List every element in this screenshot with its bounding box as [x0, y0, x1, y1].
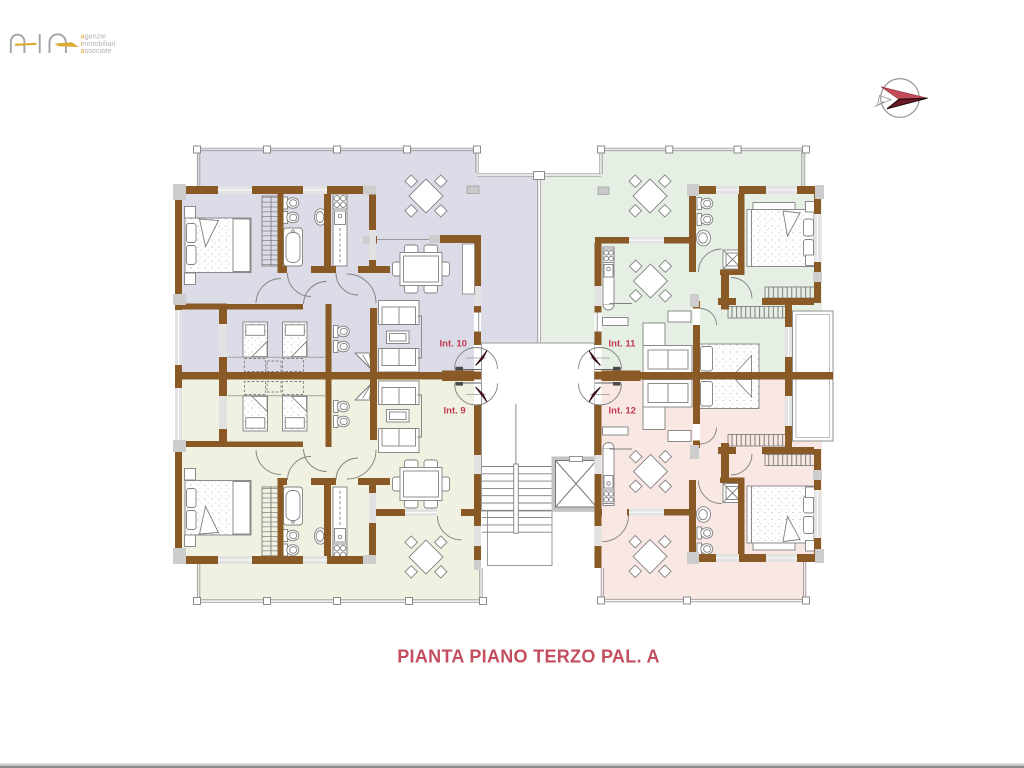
svg-text:Int. 12: Int. 12 [609, 406, 636, 417]
svg-text:Int. 9: Int. 9 [444, 406, 466, 417]
svg-text:PIANTA PIANO TERZO PAL. A: PIANTA PIANO TERZO PAL. A [397, 647, 660, 667]
svg-text:Int. 10: Int. 10 [440, 339, 467, 350]
svg-text:Int. 11: Int. 11 [609, 339, 637, 350]
svg-text:associate: associate [81, 46, 112, 55]
